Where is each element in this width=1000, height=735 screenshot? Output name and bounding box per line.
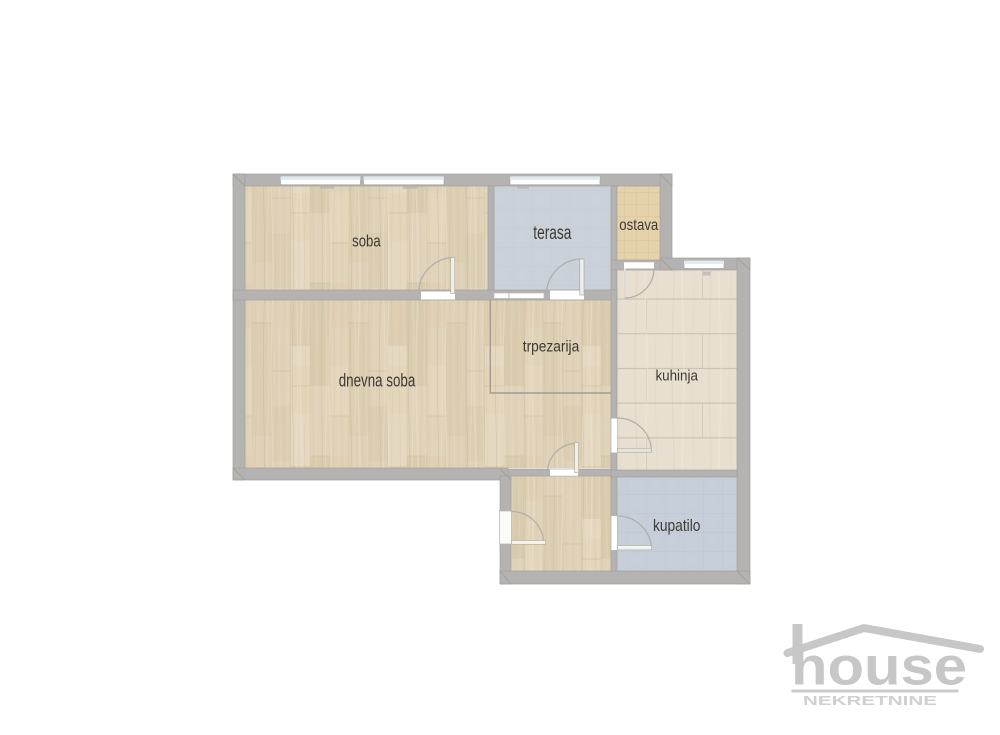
svg-text:kuhinja: kuhinja xyxy=(655,368,698,385)
svg-text:ostava: ostava xyxy=(619,217,658,234)
svg-text:soba: soba xyxy=(352,232,381,251)
svg-text:trpezarija: trpezarija xyxy=(523,338,580,355)
svg-text:kupatilo: kupatilo xyxy=(653,516,701,535)
svg-text:house: house xyxy=(791,637,967,697)
svg-text:dnevna soba: dnevna soba xyxy=(339,371,416,391)
svg-text:terasa: terasa xyxy=(533,223,571,244)
svg-text:NEKRETNINE: NEKRETNINE xyxy=(803,693,938,708)
